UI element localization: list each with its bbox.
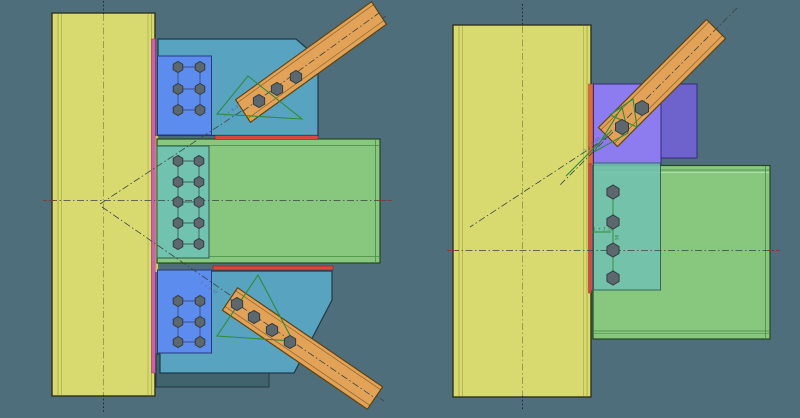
bolt[interactable] <box>607 185 619 199</box>
bolt[interactable] <box>173 317 183 328</box>
bolt[interactable] <box>194 239 204 250</box>
bolt[interactable] <box>173 156 183 167</box>
bolt[interactable] <box>195 337 205 348</box>
bolt[interactable] <box>616 120 629 135</box>
bolt[interactable] <box>195 317 205 328</box>
bolt[interactable] <box>173 197 183 208</box>
bolt[interactable] <box>636 101 649 116</box>
dimension-label: 50 <box>615 234 620 240</box>
bolt[interactable] <box>173 84 183 95</box>
flange-weld-top <box>215 136 318 140</box>
end-plate-weld-strip <box>152 39 156 373</box>
bolt[interactable] <box>194 197 204 208</box>
bolt[interactable] <box>173 177 183 188</box>
cad-viewport[interactable]: 1 + 8.97 1 + 8.97 <box>0 0 800 418</box>
bolt[interactable] <box>194 218 204 229</box>
right-view[interactable]: 1 + 0.60 1 + 2.50 50 <box>447 4 781 410</box>
bolt[interactable] <box>284 336 295 349</box>
bolt[interactable] <box>607 215 619 229</box>
column-face-weld-lower <box>589 164 592 293</box>
bolt[interactable] <box>290 71 301 84</box>
bolt[interactable] <box>607 271 619 285</box>
bolt[interactable] <box>271 83 282 96</box>
bolt[interactable] <box>173 62 183 73</box>
bolt[interactable] <box>195 84 205 95</box>
bolt[interactable] <box>173 296 183 307</box>
bolt[interactable] <box>173 239 183 250</box>
bolt[interactable] <box>248 311 259 324</box>
bolt[interactable] <box>195 62 205 73</box>
flange-weld-bottom <box>213 266 333 270</box>
bolt[interactable] <box>195 296 205 307</box>
bolt[interactable] <box>231 298 242 311</box>
bolt[interactable] <box>607 243 619 257</box>
bolt[interactable] <box>266 324 277 337</box>
bolt[interactable] <box>194 177 204 188</box>
bolt[interactable] <box>173 337 183 348</box>
column-flange[interactable] <box>453 25 591 397</box>
bolt[interactable] <box>194 156 204 167</box>
left-view[interactable]: 1 + 8.97 1 + 8.97 <box>43 1 393 413</box>
bolt[interactable] <box>173 218 183 229</box>
bolt[interactable] <box>253 95 264 108</box>
bolt[interactable] <box>173 105 183 116</box>
bolt[interactable] <box>195 105 205 116</box>
drawing-canvas[interactable]: 1 + 8.97 1 + 8.97 <box>0 0 800 418</box>
